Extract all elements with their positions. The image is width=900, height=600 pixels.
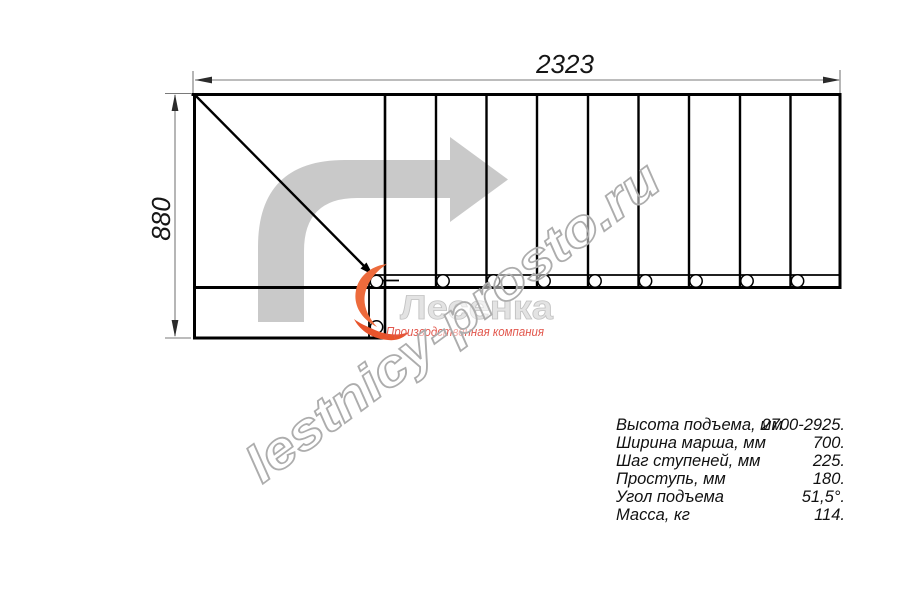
spec-label: Шаг ступеней, мм — [616, 452, 760, 470]
spec-label: Высота подъема, мм — [616, 416, 783, 434]
spec-value: 51,5°. — [802, 488, 845, 506]
baluster-circle — [690, 275, 702, 287]
spec-label: Проступь, мм — [616, 470, 726, 488]
dim-width-label: 2323 — [535, 49, 594, 79]
baluster-circle — [437, 275, 449, 287]
spec-value: 700. — [813, 434, 845, 452]
spec-label: Ширина марша, мм — [616, 434, 766, 452]
spec-label: Масса, кг — [616, 506, 690, 524]
dim-height-label: 880 — [146, 197, 176, 241]
baluster-circle — [741, 275, 753, 287]
spec-label: Угол подъема — [615, 488, 724, 506]
baluster-circle — [589, 275, 601, 287]
stair-plan-drawing: 2323 880 — [0, 0, 900, 600]
spec-value: 114. — [814, 506, 845, 524]
baluster-circle — [639, 275, 651, 287]
spec-value: 180. — [813, 470, 845, 488]
stair-plan-page: 2323 880 — [0, 0, 900, 600]
spec-value: 2700-2925. — [761, 416, 846, 434]
specs-table: Высота подъема, мм 2700-2925. Ширина мар… — [615, 416, 845, 524]
baluster-circle — [791, 275, 803, 287]
spec-value: 225. — [812, 452, 845, 470]
logo-flame-icon — [355, 264, 387, 327]
